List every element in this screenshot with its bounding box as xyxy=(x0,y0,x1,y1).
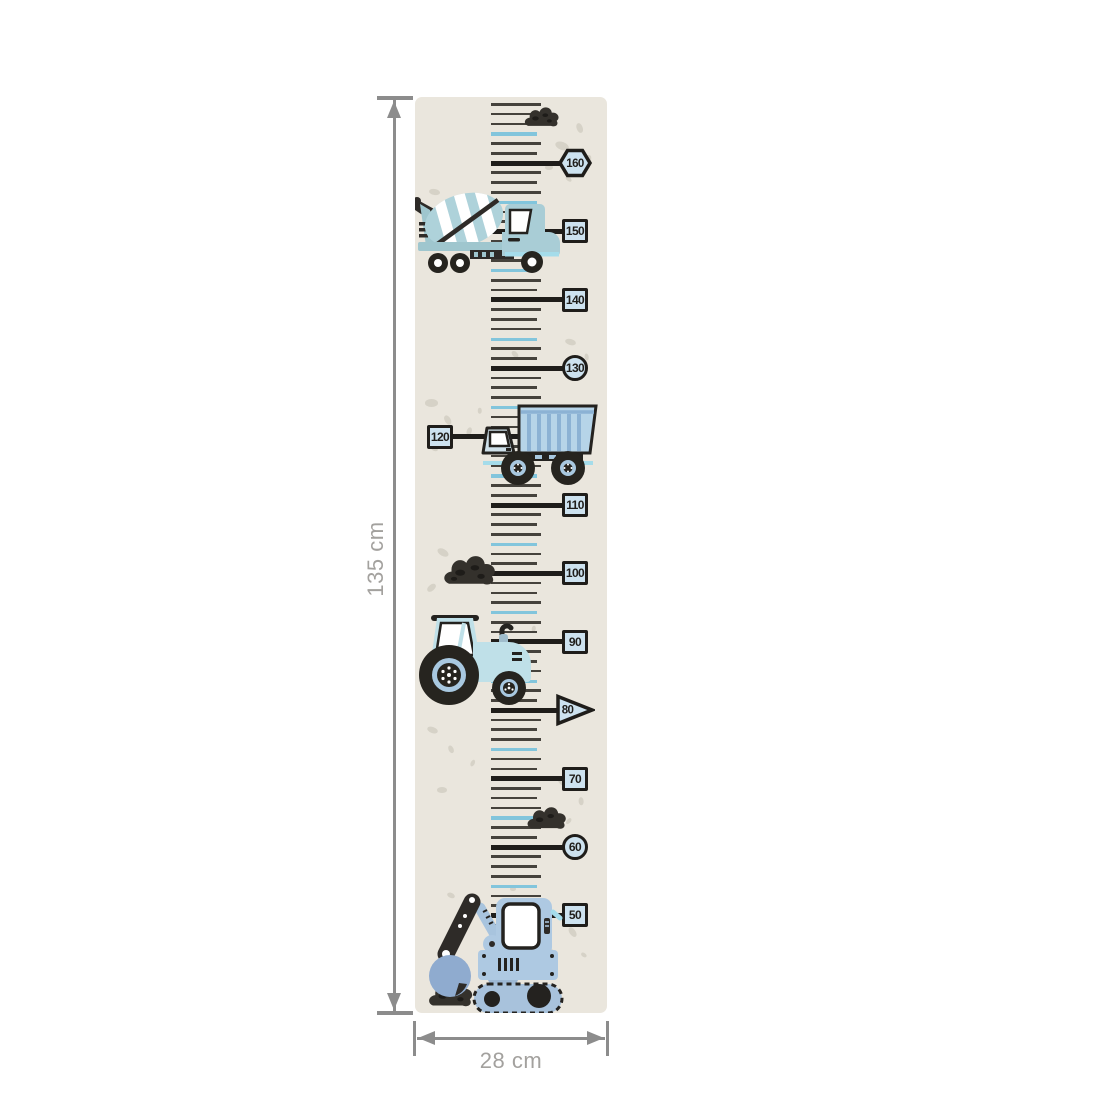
ruler-tick xyxy=(491,738,541,741)
arrow-right-icon xyxy=(587,1031,604,1045)
arrow-left-icon xyxy=(418,1031,435,1045)
ruler-badge-150: 150 xyxy=(562,219,588,243)
ruler-tick xyxy=(491,142,541,145)
svg-text:160: 160 xyxy=(566,158,584,170)
ruler-badge-110: 110 xyxy=(562,493,588,517)
width-dimension-left-cap xyxy=(413,1021,416,1056)
ruler-tick xyxy=(491,728,537,731)
ruler-badge-120: 120 xyxy=(427,425,453,449)
ruler-line-160 xyxy=(491,161,564,166)
width-dimension-line xyxy=(417,1037,605,1040)
ruler-tick xyxy=(491,855,541,858)
ruler-badge-70: 70 xyxy=(562,767,588,791)
ruler-line-70 xyxy=(491,776,564,781)
ruler-badge-160: 160 xyxy=(556,147,594,179)
width-dimension-label: 28 cm xyxy=(461,1048,561,1074)
ruler-tick-blue xyxy=(491,338,537,341)
ruler-tick xyxy=(491,328,541,331)
ruler-tick xyxy=(491,719,541,722)
ruler-tick xyxy=(491,787,541,790)
ruler-tick xyxy=(491,279,541,282)
ruler-tick xyxy=(491,562,537,565)
ruler-tick xyxy=(491,386,537,389)
cement-mixer-truck-icon xyxy=(415,186,564,278)
ruler-line-130 xyxy=(491,366,564,371)
ruler-badge-140: 140 xyxy=(562,288,588,312)
ruler-tick xyxy=(491,308,541,311)
ruler-tick xyxy=(491,347,541,350)
arrow-up-icon xyxy=(387,101,401,118)
height-dimension-top-cap xyxy=(377,96,413,100)
arrow-down-icon xyxy=(387,993,401,1010)
dirt-pile-icon xyxy=(526,804,568,830)
ruler-tick xyxy=(491,289,537,292)
ruler-line-140 xyxy=(491,297,564,302)
ruler-tick xyxy=(491,357,537,360)
height-dimension-bottom-cap xyxy=(377,1011,413,1015)
ruler-badge-130: 130 xyxy=(562,355,588,381)
ruler-tick xyxy=(491,494,537,497)
ruler-tick xyxy=(491,513,541,516)
ruler-tick xyxy=(491,181,537,184)
ruler-tick xyxy=(491,553,541,556)
ruler-tick-blue xyxy=(491,748,537,751)
dirt-pile-icon xyxy=(524,104,560,128)
dirt-pile-icon xyxy=(443,551,497,587)
ruler-tick-blue xyxy=(491,885,537,888)
ruler-tick xyxy=(491,836,537,839)
ruler-tick xyxy=(491,318,537,321)
ruler-tick xyxy=(491,601,541,604)
ruler-tick xyxy=(491,533,541,536)
ruler-badge-80: 80 xyxy=(555,693,595,727)
ruler-tick-blue xyxy=(491,543,537,546)
ruler-line-100 xyxy=(491,571,564,576)
excavator-icon xyxy=(420,892,568,1013)
ruler-tick xyxy=(491,875,541,878)
ruler-tick xyxy=(491,592,537,595)
tractor-icon xyxy=(417,612,537,706)
ruler-tick xyxy=(491,377,541,380)
ruler-tick xyxy=(491,396,541,399)
ruler-line-110 xyxy=(491,503,564,508)
height-dimension-label: 135 cm xyxy=(363,499,389,619)
growth-chart-strip: 1601501401301201101009080706050 xyxy=(415,97,607,1013)
ruler-tick xyxy=(491,152,537,155)
ruler-tick xyxy=(491,582,541,585)
ruler-tick xyxy=(491,523,537,526)
ruler-line-60 xyxy=(491,845,564,850)
ruler-tick xyxy=(491,758,541,761)
ruler-tick xyxy=(491,768,537,771)
ruler-tick xyxy=(491,865,537,868)
ruler-badge-90: 90 xyxy=(562,630,588,654)
ruler-line-80 xyxy=(491,708,564,713)
ruler-badge-100: 100 xyxy=(562,561,588,585)
ruler-badge-60: 60 xyxy=(562,834,588,860)
product-image: 1601501401301201101009080706050 xyxy=(0,0,1100,1100)
ruler-tick-blue xyxy=(491,132,537,135)
svg-text:80: 80 xyxy=(562,705,574,717)
ruler-tick xyxy=(491,171,541,174)
width-dimension-right-cap xyxy=(606,1021,609,1056)
dump-truck-icon xyxy=(477,400,601,488)
height-dimension-line xyxy=(393,99,396,1011)
ruler-tick xyxy=(491,797,537,800)
